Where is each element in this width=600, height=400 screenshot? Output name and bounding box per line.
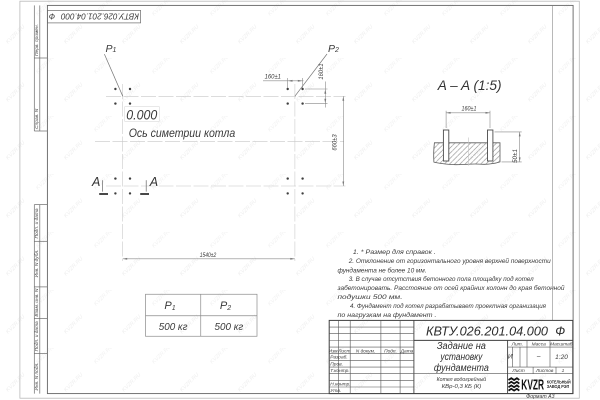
svg-text:Подп. и дата: Подп. и дата [34, 208, 40, 238]
svg-text:Подп. и дата: Подп. и дата [34, 321, 40, 351]
svg-text:1. * Размер для справок .: 1. * Размер для справок . [353, 248, 436, 256]
svg-text:Лит.: Лит. [511, 341, 523, 347]
svg-text:0.000: 0.000 [126, 107, 157, 123]
svg-text:Масштаб: Масштаб [550, 341, 573, 347]
svg-text:Ф: Ф [555, 324, 565, 338]
svg-text:забетонировать. Расстояние от: забетонировать. Расстояние от осей крайн… [337, 284, 565, 292]
svg-text:КВТУ.026.201.04.000: КВТУ.026.201.04.000 [60, 12, 139, 21]
svg-text:A: A [149, 175, 158, 189]
svg-text:Листов: Листов [535, 368, 554, 374]
svg-text:Разраб.: Разраб. [330, 355, 347, 361]
svg-text:Ось симетрии котла: Ось симетрии котла [129, 128, 236, 140]
svg-text:фундамента: фундамента [434, 362, 489, 374]
svg-text:КВТУ.026.201.04.000: КВТУ.026.201.04.000 [426, 324, 548, 338]
svg-text:660±3: 660±3 [331, 134, 338, 150]
svg-text:50±1: 50±1 [512, 149, 519, 163]
svg-text:И: И [508, 353, 513, 360]
svg-text:1:20: 1:20 [555, 354, 568, 361]
svg-text:N докум.: N докум. [356, 348, 375, 354]
svg-text:Перв. примен.: Перв. примен. [34, 24, 40, 56]
svg-text:500 кг: 500 кг [159, 321, 188, 333]
svg-text:160±1: 160±1 [318, 63, 325, 79]
svg-text:Т.контр.: Т.контр. [330, 368, 349, 374]
svg-text:фундамента не более 10 мм.: фундамента не более 10 мм. [338, 266, 427, 274]
svg-text:4. Фундамент под котел разраб: 4. Фундамент под котел разрабатывает про… [350, 302, 546, 310]
svg-text:Подп.: Подп. [384, 348, 397, 354]
svg-text:500 кг: 500 кг [215, 321, 244, 333]
svg-text:Котел водогрейный: Котел водогрейный [437, 376, 487, 383]
svg-text:Задание на: Задание на [437, 341, 486, 352]
svg-text:Ф: Ф [49, 12, 55, 21]
svg-text:Дата: Дата [400, 348, 414, 354]
svg-text:Н.контр.: Н.контр. [330, 381, 350, 387]
svg-text:КВр-0,3 КБ (К): КВр-0,3 КБ (К) [442, 384, 482, 390]
svg-text:Пров.: Пров. [330, 361, 343, 367]
svg-text:160±1: 160±1 [462, 105, 477, 112]
svg-text:Формат А3: Формат А3 [526, 394, 555, 400]
svg-text:Справ. N: Справ. N [34, 108, 40, 129]
svg-text:Лист: Лист [511, 368, 524, 374]
svg-text:Масса: Масса [532, 341, 547, 347]
svg-text:Инв. N подл.: Инв. N подл. [34, 362, 40, 390]
svg-text:3. В случае отсутствия бетонн: 3. В случае отсутствия бетонного пола пл… [349, 275, 534, 283]
svg-text:по нагрузкам на фундамент .: по нагрузкам на фундамент . [338, 311, 437, 319]
svg-text:Взам. инв. N: Взам. инв. N [34, 288, 40, 316]
svg-text:Инв. N дубл.: Инв. N дубл. [34, 250, 40, 278]
svg-text:160±1: 160±1 [265, 74, 281, 81]
svg-text:Утв.: Утв. [330, 388, 341, 394]
svg-text:1: 1 [562, 368, 565, 374]
svg-text:ЗАВОД РЭП: ЗАВОД РЭП [547, 384, 570, 389]
svg-text:KVZR: KVZR [521, 378, 544, 394]
svg-text:установку: установку [440, 352, 484, 363]
svg-text:2. Отклонение от горизонтальн: 2. Отклонение от горизонтального уровня … [348, 257, 551, 265]
svg-text:1540±2: 1540±2 [200, 252, 217, 259]
svg-text:–: – [536, 353, 541, 360]
svg-text:A – A (1:5): A – A (1:5) [437, 77, 502, 93]
svg-text:подушки 500 мм.: подушки 500 мм. [338, 293, 403, 301]
svg-text:A: A [91, 175, 100, 189]
svg-text:Лист: Лист [337, 348, 350, 354]
